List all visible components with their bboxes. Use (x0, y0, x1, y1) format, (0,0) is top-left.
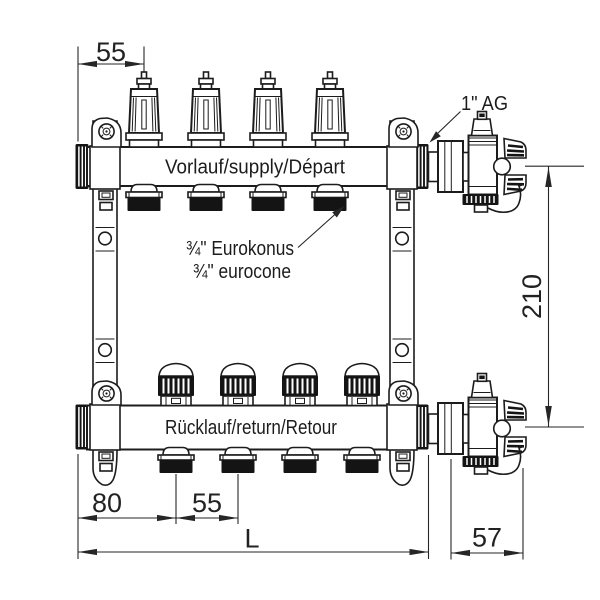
return-outlets (158, 448, 380, 474)
dim-text-top-55: 55 (96, 37, 126, 67)
thermostatic-valve-4 (312, 72, 348, 147)
thermostatic-valve-2 (188, 72, 224, 147)
flow-meter-4 (344, 364, 380, 406)
return-outlet-1 (158, 448, 194, 474)
drawing-canvas: Vorlauf/supply/Départ Rücklauf/return/Re… (0, 0, 600, 600)
supply-outlet-1 (126, 185, 162, 212)
flow-meter-1 (158, 364, 194, 406)
dim-text-80: 80 (92, 488, 122, 518)
thermostatic-valve-1 (126, 72, 162, 147)
supply-outlet-3 (250, 185, 286, 212)
flow-meter-3 (282, 364, 318, 406)
return-flow-meters (158, 364, 380, 406)
return-outlet-2 (220, 448, 256, 474)
leader-eurokonus (298, 206, 345, 248)
dim-text-height-210: 210 (517, 274, 547, 319)
supply-ball-valve (429, 112, 527, 213)
thermostatic-valves (126, 72, 348, 147)
leader-1in-ag (430, 112, 461, 143)
return-manifold: Rücklauf/return/Retour (76, 405, 429, 450)
thermostatic-valve-3 (250, 72, 286, 147)
dim-text-total-length: L (244, 524, 259, 554)
mounting-bracket-right (387, 118, 418, 485)
return-outlet-3 (282, 448, 318, 474)
supply-outlet-2 (188, 185, 224, 212)
mounting-bracket-left (90, 118, 121, 485)
eurokonus-label-de: ¾" Eurokonus (186, 237, 294, 260)
supply-outlets (126, 185, 348, 212)
dim-text-bottom-55: 55 (192, 488, 222, 518)
manifold-technical-drawing: Vorlauf/supply/Départ Rücklauf/return/Re… (0, 0, 600, 600)
return-outlet-4 (344, 448, 380, 474)
supply-manifold-label: Vorlauf/supply/Départ (165, 156, 345, 179)
supply-manifold: Vorlauf/supply/Départ (76, 144, 429, 189)
eurokonus-label-en: ¾" eurocone (193, 260, 291, 283)
return-manifold-label: Rücklauf/return/Retour (165, 416, 337, 439)
flow-meter-2 (220, 364, 256, 406)
dim-text-57: 57 (472, 523, 502, 553)
return-ball-valve (429, 374, 527, 475)
connection-size-label: 1" AG (461, 92, 508, 115)
